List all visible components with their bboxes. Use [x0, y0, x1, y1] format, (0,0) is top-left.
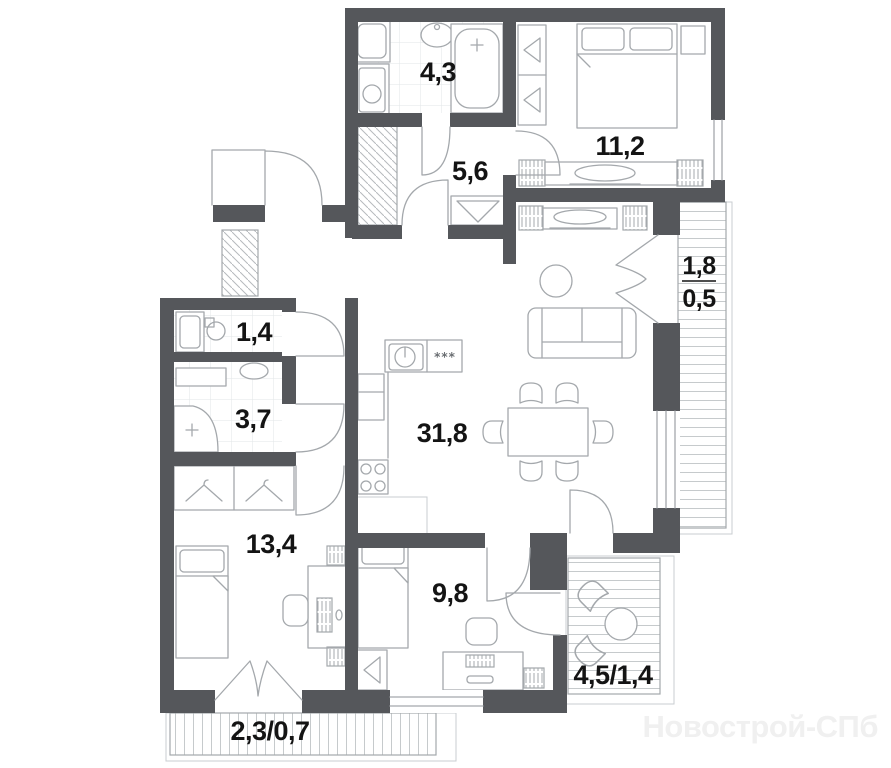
- keyboard-icon: [466, 655, 494, 667]
- floor-plan-drawing: ***: [0, 0, 891, 768]
- sink-icon: [240, 363, 268, 379]
- corridor-closet-icon: [222, 230, 258, 296]
- cabinet-icon: [519, 160, 545, 186]
- cabinet-icon: [677, 160, 703, 186]
- french-door-bedroom-left: [215, 661, 302, 700]
- chair-icon: [483, 421, 503, 443]
- tv-icon: [554, 210, 606, 224]
- bench-icon: [176, 368, 226, 386]
- loggia-right-area-coef: 0,5: [682, 285, 716, 313]
- room-label-bedroom-master: 11,2: [595, 131, 644, 161]
- chair-icon: [520, 383, 542, 403]
- chair-icon: [556, 383, 578, 403]
- loggia-bottom-right-label: 4,5/1,4: [573, 660, 653, 690]
- cabinet-icon: [519, 206, 543, 230]
- room-label-laundry: 1,4: [236, 317, 273, 347]
- wardrobe-icon: [357, 650, 387, 690]
- room-label-shower-room: 3,7: [235, 404, 271, 434]
- mouse-icon: [336, 610, 342, 620]
- door-shower-room: [296, 404, 344, 452]
- balcony-bottom-left: [166, 713, 456, 761]
- floor-plan-page: ***: [0, 0, 891, 768]
- door-bedroom-left: [296, 466, 344, 515]
- loggia-right-area-full: 1,8: [682, 252, 716, 280]
- hob-marks: ***: [434, 350, 456, 364]
- bedroom-left-wardrobe: [174, 466, 294, 510]
- room-label-bedroom-right: 9,8: [432, 578, 469, 608]
- room-label-living-kitchen: 31,8: [417, 418, 468, 448]
- balcony-table-icon: [605, 608, 637, 640]
- bedroom-master-furniture: [518, 24, 705, 186]
- room-label-bedroom-left: 13,4: [246, 529, 297, 559]
- sink-icon: [207, 322, 225, 340]
- room-label-bathroom: 4,3: [420, 57, 457, 87]
- window: [390, 690, 483, 713]
- keyboard-icon: [317, 598, 332, 632]
- nightstand-icon: [524, 668, 544, 688]
- kitchen-zone-border: [358, 497, 427, 533]
- door-entrance: [265, 151, 322, 205]
- window: [653, 411, 680, 508]
- kitchen-sink-icon: [389, 344, 423, 370]
- door-laundry: [296, 312, 344, 356]
- balcony-bottom-left-label: 2,3/0,7: [230, 716, 309, 746]
- bedroom-left-furniture: [176, 546, 346, 666]
- room-label-hallway: 5,6: [452, 156, 489, 186]
- nightstand-icon: [681, 26, 705, 54]
- hallway-furniture: [451, 196, 505, 225]
- window: [711, 120, 725, 180]
- office-chair-icon: [466, 618, 497, 645]
- chair-icon: [593, 421, 613, 443]
- door-bathroom: [422, 127, 450, 175]
- office-chair-icon: [283, 595, 308, 626]
- vestibule-outline: [212, 150, 265, 205]
- tv-icon: [575, 165, 635, 181]
- door-hallway-living: [402, 180, 448, 225]
- bedroom-right-furniture: [357, 540, 544, 690]
- fridge-icon: [358, 374, 384, 420]
- door-living-loggia: [570, 490, 613, 533]
- cabinet-icon: [327, 546, 345, 565]
- cabinet-icon: [623, 206, 647, 230]
- hall-closet-icon: [358, 122, 397, 225]
- living-kitchen-furniture: ***: [358, 206, 647, 533]
- toilet-icon: [421, 23, 453, 47]
- coffee-table-icon: [540, 265, 572, 297]
- cabinet-icon: [327, 647, 345, 666]
- chair-icon: [520, 461, 542, 481]
- chair-icon: [556, 461, 578, 481]
- dining-table-icon: [508, 408, 588, 456]
- watermark-text: Новострой-СПб: [643, 709, 879, 744]
- door-bedroom-right-loggia: [506, 593, 560, 635]
